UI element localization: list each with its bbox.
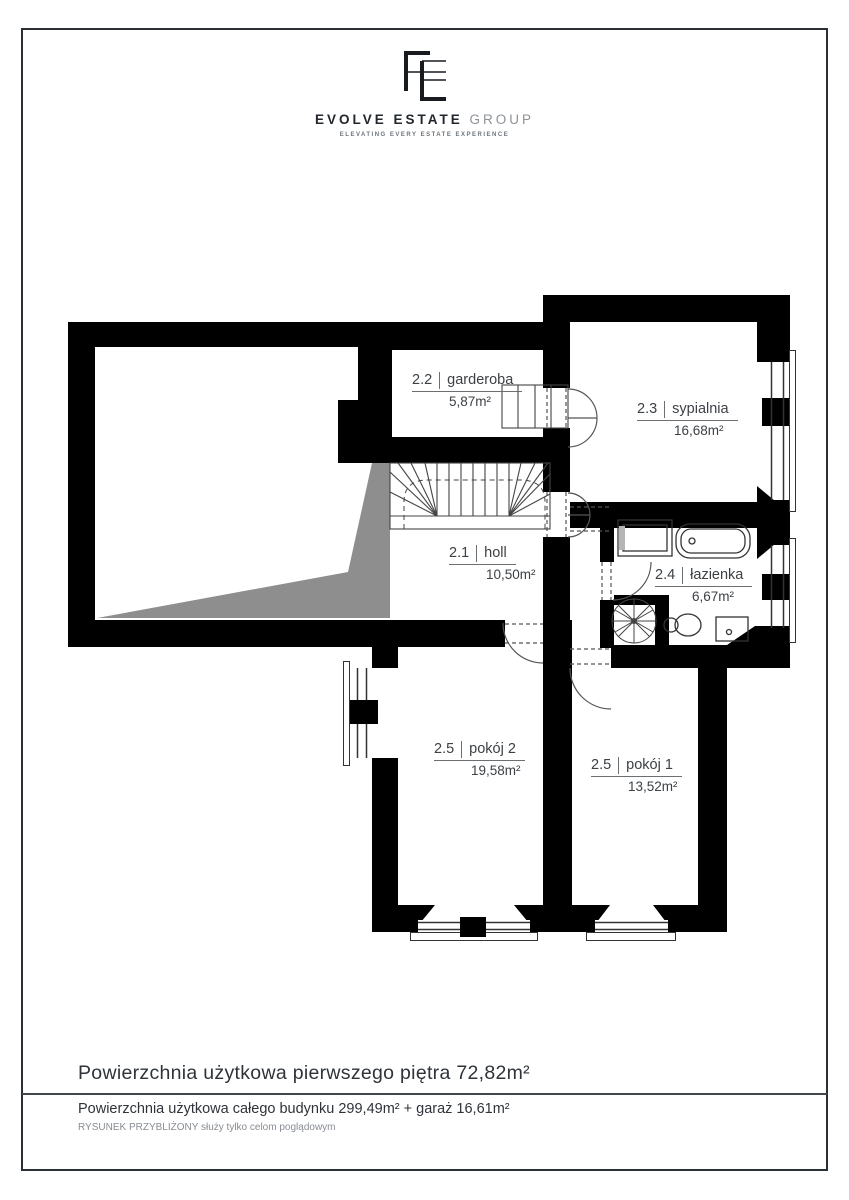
toilet — [664, 614, 701, 636]
window-sypialnia-right — [772, 351, 796, 512]
room-number: 2.3 — [637, 401, 665, 418]
bathtub — [676, 524, 750, 558]
disclaimer-line: RYSUNEK PRZYBLIŻONY służy tylko celom po… — [78, 1122, 336, 1133]
room-number: 2.1 — [449, 545, 477, 562]
floorplan-page: EVOLVE ESTATE GROUP ELEVATING EVERY ESTA… — [0, 0, 849, 1200]
room-name: łazienka — [690, 567, 743, 584]
spiral-staircase — [612, 599, 656, 643]
room-area: 10,50m² — [486, 565, 536, 583]
main-staircase — [390, 463, 550, 529]
room-name: sypialnia — [672, 401, 728, 418]
floor-area-title: Powierzchnia użytkowa pierwszego piętra … — [78, 1062, 530, 1085]
room-name: holl — [484, 545, 507, 562]
room-area: 16,68m² — [674, 421, 738, 439]
room-label-pokoj1: 2.5pokój 1 13,52m² — [591, 757, 682, 794]
room-area: 19,58m² — [471, 761, 525, 779]
room-name: pokój 2 — [469, 741, 516, 758]
room-number: 2.2 — [412, 372, 440, 389]
room-name: pokój 1 — [626, 757, 673, 774]
window-pokoj2-left — [344, 662, 379, 766]
room-label-lazienka: 2.4łazienka 6,67m² — [655, 567, 752, 604]
footer-divider — [22, 1093, 827, 1095]
void-shade-wedge — [97, 463, 390, 618]
shower-tray — [618, 520, 672, 556]
room-label-garderoba: 2.2garderoba 5,87m² — [412, 372, 522, 409]
room-label-holl: 2.1holl 10,50m² — [449, 545, 536, 582]
room-area: 13,52m² — [628, 777, 682, 795]
room-area: 5,87m² — [449, 392, 522, 410]
room-label-pokoj2: 2.5pokój 2 19,58m² — [434, 741, 525, 778]
room-area: 6,67m² — [692, 587, 752, 605]
room-number: 2.5 — [591, 757, 619, 774]
door-pokoj2 — [503, 623, 543, 663]
room-number: 2.4 — [655, 567, 683, 584]
room-number: 2.5 — [434, 741, 462, 758]
room-label-sypialnia: 2.3sypialnia 16,68m² — [637, 401, 738, 438]
building-area-line: Powierzchnia użytkowa całego budynku 299… — [78, 1101, 510, 1117]
room-name: garderoba — [447, 372, 513, 389]
door-pokoj1 — [570, 649, 611, 709]
